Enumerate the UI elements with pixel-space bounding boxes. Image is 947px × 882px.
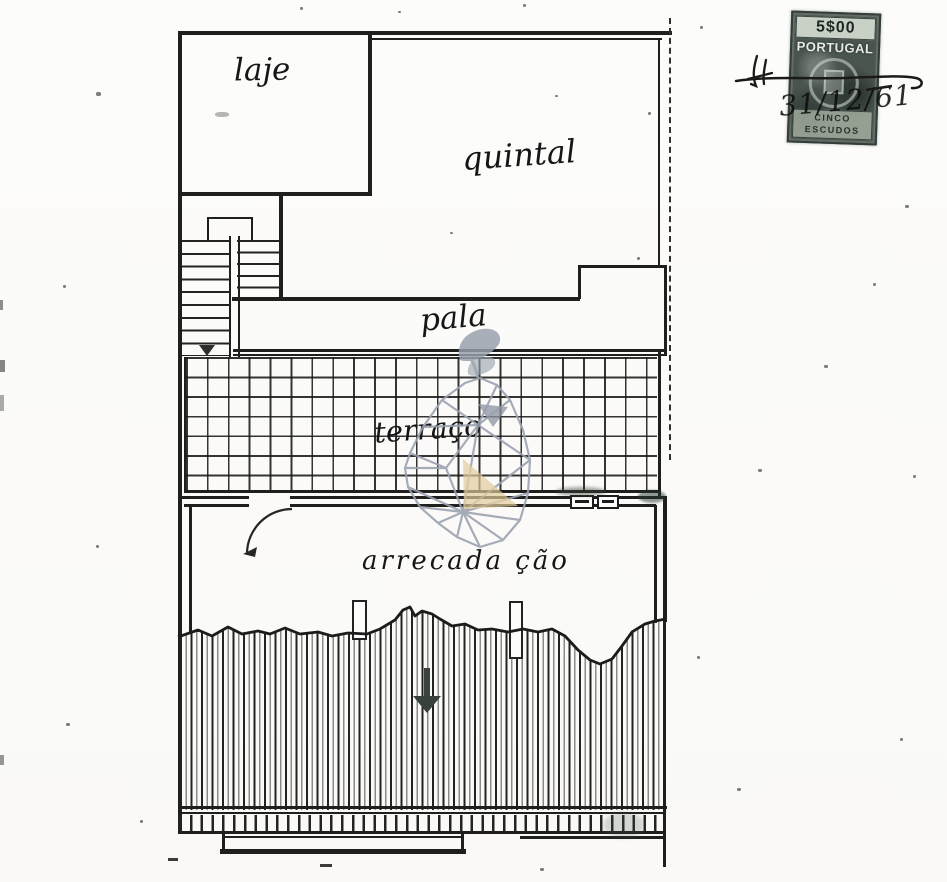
stamp-value: 5$00 bbox=[795, 16, 876, 41]
pala-wall-bottom-inner bbox=[233, 354, 667, 356]
storage-wall-right-outer bbox=[663, 497, 667, 622]
step-rect-bottom bbox=[220, 849, 466, 854]
stair-treads-right-flight bbox=[237, 240, 280, 300]
pillar-2 bbox=[509, 601, 523, 659]
ink-smudge bbox=[556, 487, 606, 496]
storage-wall-top-inner-left bbox=[184, 504, 249, 507]
entrance-down-arrow-icon bbox=[413, 696, 441, 713]
label-quintal: quintal bbox=[461, 132, 577, 178]
storage-wall-top-outer-left bbox=[178, 496, 249, 499]
stair-landing-right bbox=[251, 217, 253, 240]
door-swing-arc bbox=[247, 509, 292, 553]
stamp-denom-line2: ESCUDOS bbox=[793, 123, 871, 138]
step-rect-inner bbox=[225, 836, 461, 838]
ink-smudge bbox=[638, 490, 666, 503]
entrance-arrow-shaft bbox=[424, 668, 430, 698]
door-swing-arrowhead bbox=[243, 547, 257, 557]
base-line-3 bbox=[178, 831, 665, 834]
boundary-right-dashed bbox=[669, 18, 671, 460]
quintal-step-wall bbox=[578, 265, 581, 299]
stair-treads-left-flight bbox=[182, 240, 229, 356]
laje-wall-right bbox=[368, 31, 372, 196]
pala-wall-bottom-outer bbox=[233, 349, 667, 352]
stair-down-arrow-icon bbox=[199, 345, 215, 356]
pillar-1 bbox=[352, 600, 367, 640]
scanned-floor-plan-page: laje quintal pala terraço arrecada ção 5… bbox=[0, 0, 947, 882]
wall-vent-marker-1 bbox=[570, 495, 594, 509]
wall-top-inner bbox=[372, 38, 662, 40]
label-laje: laje bbox=[234, 52, 291, 89]
stair-landing-left bbox=[207, 217, 209, 240]
stamp-country: PORTUGAL bbox=[792, 39, 878, 57]
pen-initials bbox=[748, 56, 772, 86]
pala-wall-right bbox=[664, 265, 667, 355]
quintal-wall-right-inner bbox=[658, 38, 660, 268]
base-line-2 bbox=[178, 812, 665, 814]
revenue-stamp: 5$00 PORTUGAL CINCO ESCUDOS bbox=[787, 10, 882, 145]
wall-vent-marker-2 bbox=[597, 495, 619, 509]
storage-wall-right-inner bbox=[654, 505, 657, 623]
label-pala: pala bbox=[419, 297, 489, 339]
scan-smudge bbox=[603, 812, 645, 838]
stair-landing-top bbox=[207, 217, 253, 219]
quintal-wall-bottom-right bbox=[578, 265, 667, 268]
terrace-wall-right-inner bbox=[658, 352, 661, 497]
laje-wall-bottom bbox=[178, 192, 372, 196]
label-arrecadacao: arrecada ção bbox=[362, 546, 570, 576]
storage-wall-left-inner bbox=[189, 504, 192, 632]
base-line-1 bbox=[178, 806, 667, 809]
base-tick-band bbox=[179, 815, 665, 831]
wall-top-outer bbox=[178, 31, 672, 35]
base-right-line bbox=[520, 836, 663, 839]
quintal-wall-bottom bbox=[232, 297, 580, 301]
